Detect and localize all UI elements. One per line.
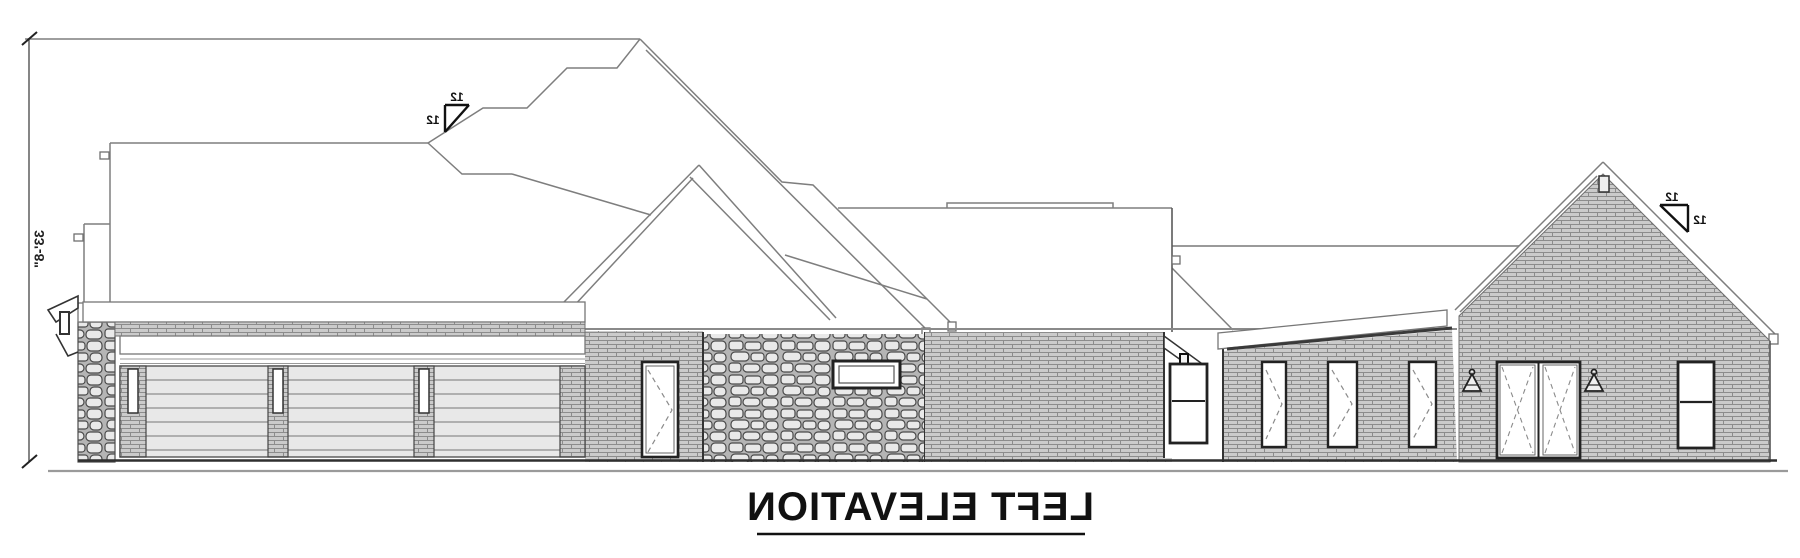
- height-dimension-label: 33'-8": [31, 230, 47, 268]
- garage-fascia-band: [83, 302, 585, 322]
- elevation-drawing: 33'-8" 12 12 12 12 LEFT ELEVATION: [0, 0, 1800, 558]
- height-dimension-line: 33'-8": [22, 32, 47, 468]
- niche-window: [1170, 364, 1207, 443]
- pitch-rise-label: 12: [1693, 213, 1707, 227]
- pitch-marker-left: 12 12: [426, 90, 469, 132]
- casement-window: [1262, 362, 1286, 447]
- stone-wall-window: [833, 361, 900, 388]
- double-hung-window: [1678, 362, 1714, 448]
- pitch-rise-label: 12: [426, 113, 440, 127]
- side-door: [642, 362, 678, 457]
- pitch-run-label: 12: [1665, 190, 1679, 204]
- elevation-sheet: 33'-8" 12 12 12 12 LEFT ELEVATION: [0, 0, 1800, 558]
- pitch-run-label: 12: [450, 90, 464, 104]
- casement-window: [1328, 362, 1357, 447]
- knee-brace: [48, 296, 78, 356]
- gable-vent: [1599, 176, 1609, 192]
- porch-niche: [1164, 332, 1223, 462]
- stone-pier: [78, 322, 115, 462]
- brick-wall-long: [925, 332, 1172, 462]
- title-text: LEFT ELEVATION: [746, 485, 1094, 529]
- garage-header-band: [120, 336, 585, 354]
- garage-section: [83, 302, 585, 457]
- double-french-doors: [1497, 362, 1580, 458]
- stone-veneer-wall: [703, 334, 925, 462]
- casement-window: [1409, 362, 1436, 447]
- drawing-title: LEFT ELEVATION: [746, 485, 1094, 534]
- garage-brick-band: [115, 322, 585, 336]
